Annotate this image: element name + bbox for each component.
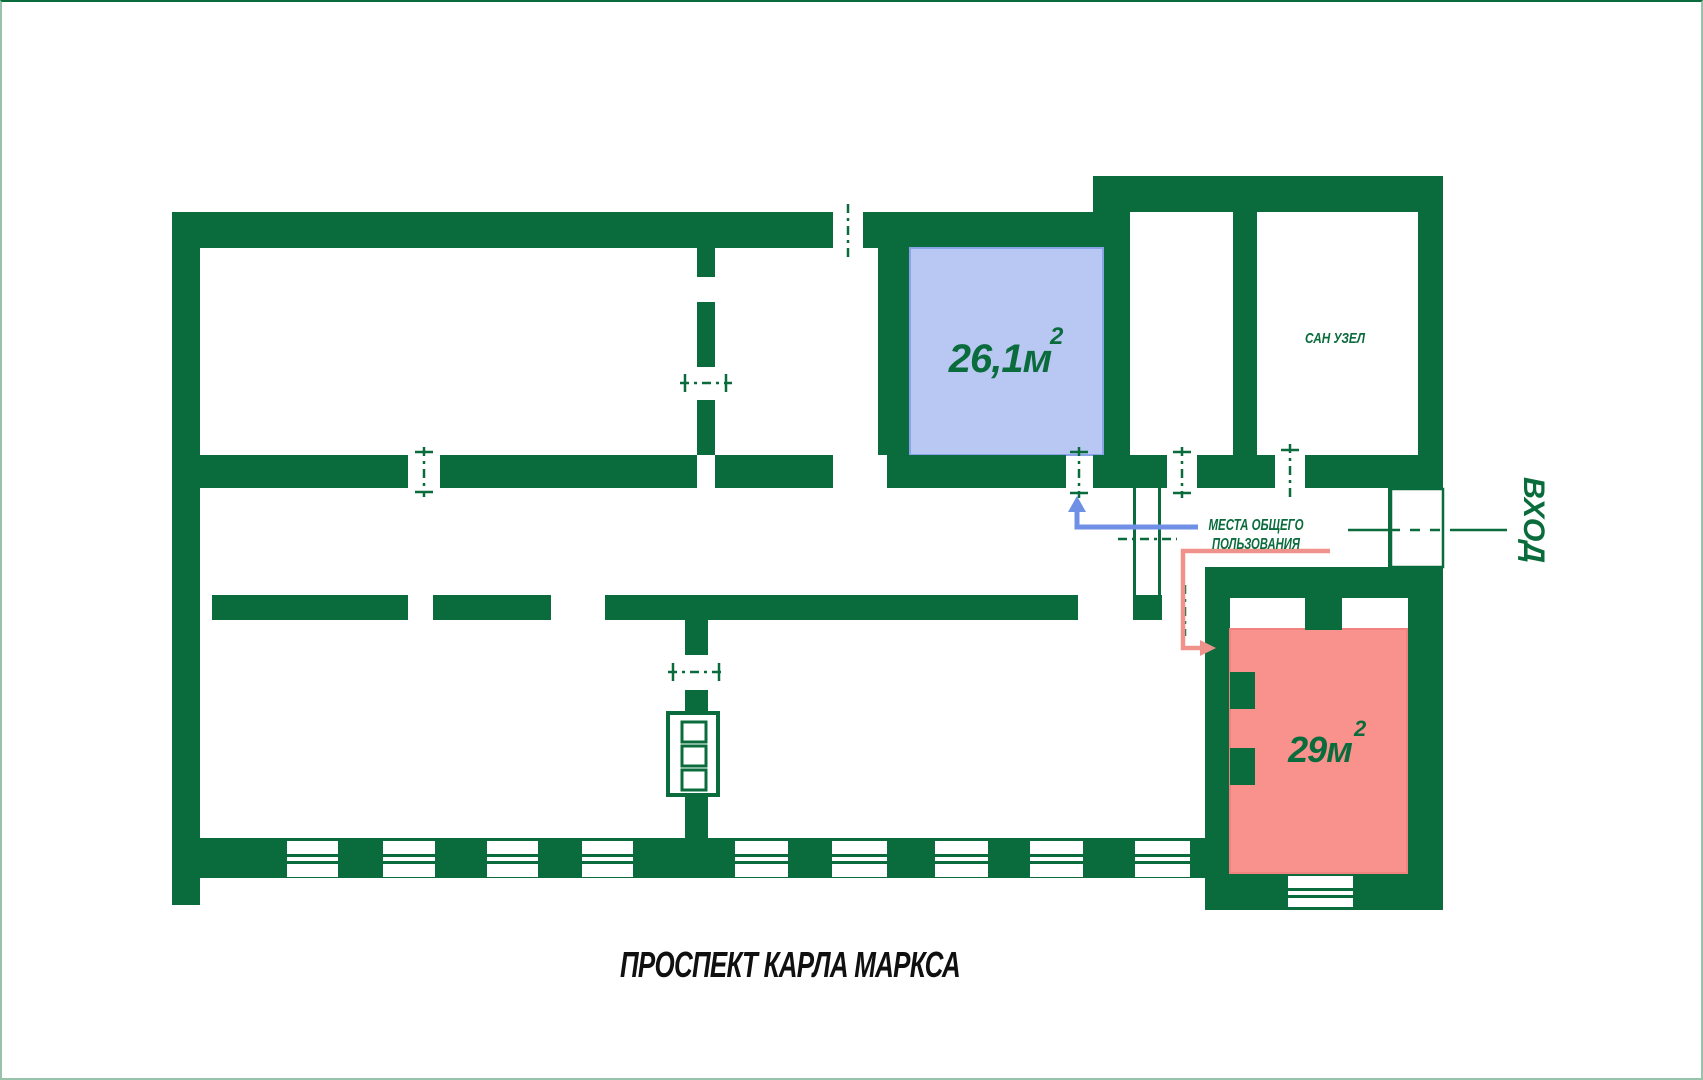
wall-corridor-top [1197,455,1275,488]
wall-top-main [172,212,1128,248]
floor-plan: 26,1м 2 29м 2 САН УЗЕЛ МЕСТА ОБЩЕГО ПОЛЬ… [0,0,1703,1080]
entrance-door-jamb [1388,488,1391,568]
wall-corridor-top [1093,455,1167,488]
window [383,841,435,877]
wall-segment [685,793,708,838]
common-area-label-line1: МЕСТА ОБЩЕГО [1209,517,1304,534]
window [1288,876,1353,907]
common-area-label-line2: ПОЛЬЗОВАНИЯ [1212,536,1301,553]
street-name-label: ПРОСПЕКТ КАРЛА МАРКСА [620,944,960,985]
wall-red-left [1205,567,1230,910]
entrance-label: ВХОД [1517,477,1550,563]
wall-corridor-top [715,455,833,488]
pilaster [1305,598,1342,630]
window [1135,841,1190,877]
wall-corridor-top [440,455,697,488]
wall-left [172,212,200,905]
wall-corridor-bottom [605,595,1078,620]
wall-right-upper [1418,176,1443,488]
window [832,841,887,877]
wall-corridor-top [887,455,1066,488]
window [287,841,338,877]
window [735,841,788,877]
wall-red-top [1205,567,1443,598]
wall-corridor-top [1305,455,1418,488]
entrance-door [1391,489,1443,567]
wall-segment [697,248,715,277]
arrow-head-up-icon [1068,496,1086,512]
wall-corridor-bottom [212,595,408,620]
wall-right-lower [1408,568,1443,910]
upper-interior-walls [200,212,1418,488]
window [935,841,988,877]
wall-blue-left [878,248,910,455]
wall-corridor-bottom [1133,595,1162,620]
entrance-area [1348,488,1507,568]
room-29-area-label: 29м [1287,729,1352,770]
floor-plan-page: 26,1м 2 29м 2 САН УЗЕЛ МЕСТА ОБЩЕГО ПОЛЬ… [0,0,1703,1080]
wall-toilet-left [1233,212,1257,462]
shaft-line [1133,488,1136,595]
wall-blue-right [1103,212,1130,455]
pilaster [1230,672,1255,709]
window [487,841,538,877]
pilaster [1230,748,1255,785]
street-windows [287,841,1190,877]
room-26-area-sup: 2 [1049,323,1064,350]
san-uzel-label: САН УЗЕЛ [1305,330,1366,347]
wall-corridor-bottom [433,595,551,620]
shaft-line [1158,488,1161,595]
wall-segment [685,595,708,655]
wall-segment [697,400,715,455]
wall-top-right-section [1093,176,1443,212]
wall-segment [697,302,715,367]
wall-corridor-top [200,455,408,488]
window [582,841,633,877]
room-26-area-label: 26,1м [948,337,1052,381]
stove-flue-symbol [668,713,718,795]
lower-interior-walls [212,488,1162,838]
room-29-area-sup: 2 [1353,716,1367,741]
window [1030,841,1083,877]
